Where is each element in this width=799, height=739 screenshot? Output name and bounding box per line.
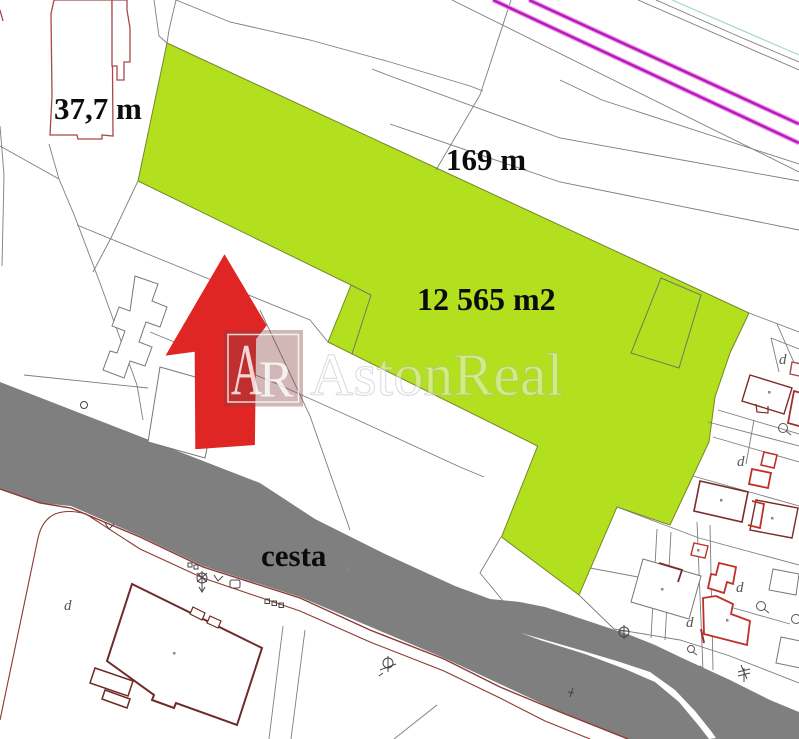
svg-text:AstonReal: AstonReal	[310, 342, 563, 408]
svg-text:d: d	[736, 580, 744, 596]
svg-text:12 565 m2: 12 565 m2	[417, 281, 556, 317]
svg-text:d: d	[64, 598, 72, 614]
svg-text:d: d	[737, 454, 745, 470]
svg-text:d: d	[686, 615, 694, 631]
svg-text:R: R	[259, 352, 294, 409]
svg-text:d: d	[779, 352, 787, 368]
svg-text:cesta: cesta	[261, 538, 327, 573]
svg-text:37,7 m: 37,7 m	[54, 91, 142, 126]
svg-text:A: A	[231, 329, 262, 410]
svg-text:169 m: 169 m	[446, 142, 526, 177]
